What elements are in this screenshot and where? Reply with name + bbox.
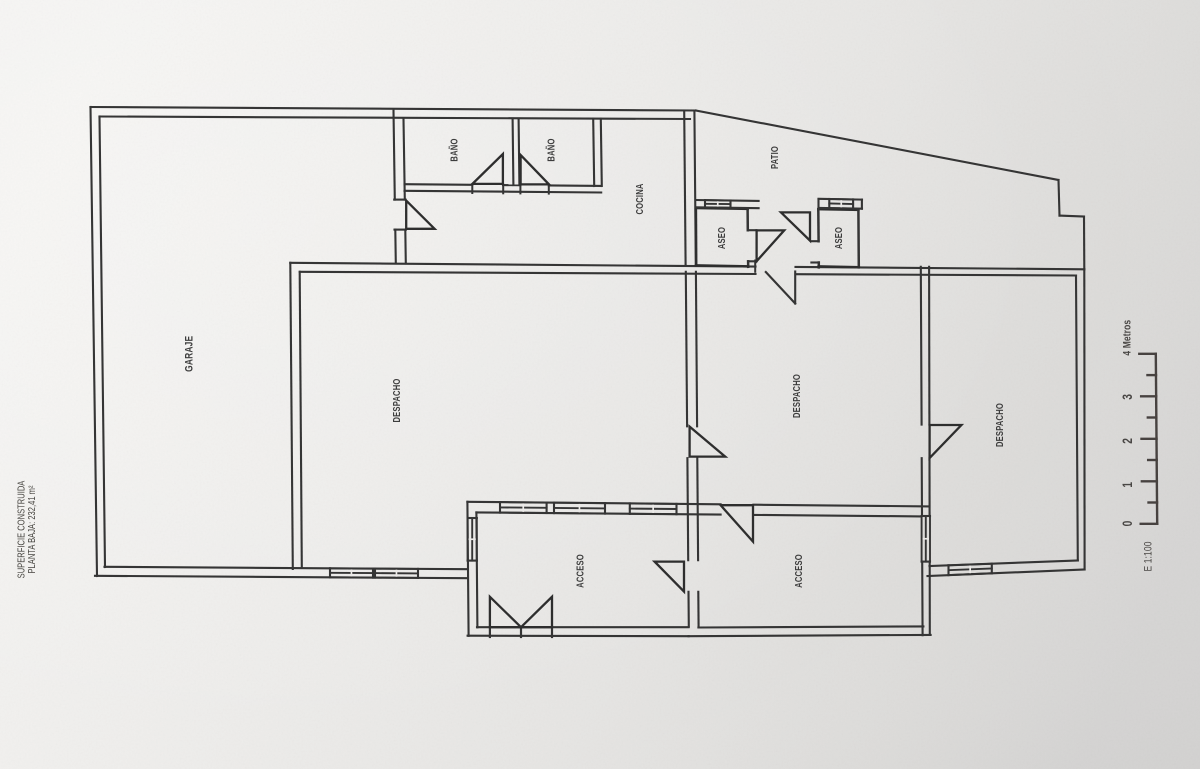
- svg-text:ACCESO: ACCESO: [574, 554, 585, 588]
- svg-text:ACCESO: ACCESO: [793, 554, 804, 588]
- svg-text:DESPACHO: DESPACHO: [391, 378, 402, 422]
- svg-text:4 Metros: 4 Metros: [1121, 319, 1133, 355]
- svg-text:DESPACHO: DESPACHO: [791, 374, 802, 418]
- svg-text:PATIO: PATIO: [769, 146, 780, 169]
- svg-text:COCINA: COCINA: [634, 183, 645, 214]
- svg-text:ASEO: ASEO: [833, 227, 844, 249]
- svg-text:ASEO: ASEO: [716, 227, 727, 249]
- svg-text:0: 0: [1120, 520, 1136, 526]
- svg-text:3: 3: [1120, 394, 1136, 400]
- svg-text:E 1:100: E 1:100: [1142, 541, 1154, 571]
- svg-text:BAÑO: BAÑO: [448, 138, 459, 161]
- svg-text:2: 2: [1120, 438, 1136, 444]
- svg-text:DESPACHO: DESPACHO: [994, 403, 1005, 447]
- svg-text:1: 1: [1120, 482, 1136, 488]
- svg-text:BAÑO: BAÑO: [545, 138, 556, 161]
- svg-text:GARAJE: GARAJE: [183, 335, 195, 371]
- svg-text:PLANTA BAJA: 232,41 m²: PLANTA BAJA: 232,41 m²: [26, 485, 37, 573]
